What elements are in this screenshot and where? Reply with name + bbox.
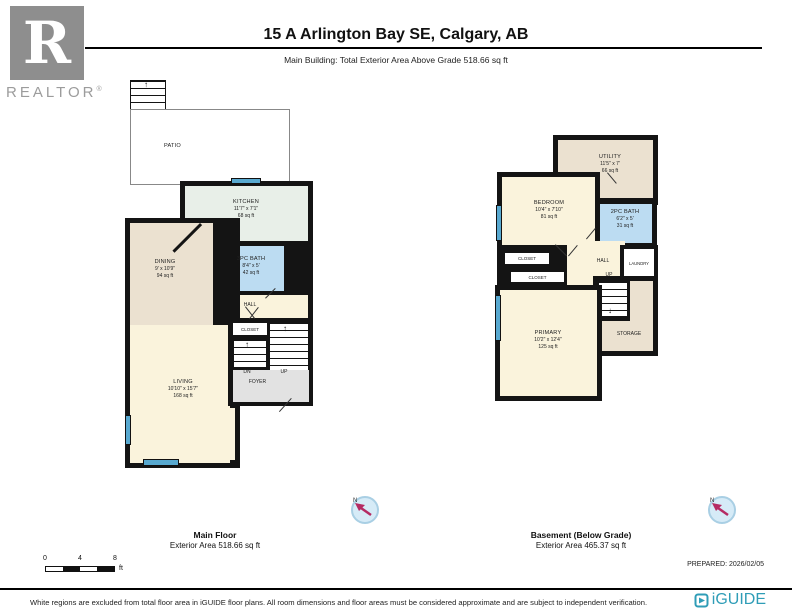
- room-living-extension: [225, 408, 235, 460]
- scale-segment: [80, 567, 97, 571]
- room-name: UTILITY: [570, 153, 650, 161]
- room-dims: 6'2" x 5': [585, 216, 665, 223]
- room-name: 2PC BATH: [585, 208, 665, 216]
- scale-bar: [45, 566, 115, 572]
- room-name: PRIMARY: [508, 329, 588, 337]
- up-label: UP: [274, 369, 294, 375]
- floor-name: Main Floor: [130, 530, 300, 541]
- room-name: LIVING: [153, 378, 213, 386]
- room-dims: 9' x 10'9": [135, 266, 195, 273]
- room-area: 31 sq ft: [585, 223, 665, 230]
- realtor-word: REALTOR: [6, 84, 96, 101]
- header-divider: [85, 47, 762, 49]
- room-area: 125 sq ft: [508, 344, 588, 351]
- room-name: 3PC BATH: [211, 255, 291, 263]
- floor-area: Exterior Area 465.37 sq ft: [495, 541, 667, 551]
- disclaimer-text: White regions are excluded from total fl…: [30, 598, 647, 607]
- room-laundry-label: LAUNDRY: [622, 261, 656, 266]
- floorplan-page: R REALTOR® 15 A Arlington Bay SE, Calgar…: [0, 0, 792, 612]
- living-window-bottom: [143, 459, 179, 466]
- floor-area: Exterior Area 518.66 sq ft: [130, 541, 300, 551]
- stairs-arrow-icon: ↑: [283, 325, 287, 333]
- room-dims: 10'4" x 7'10": [509, 207, 589, 214]
- iguide-logo-icon: [694, 593, 709, 608]
- room-primary-label: PRIMARY 10'2" x 12'4" 125 sq ft: [508, 329, 588, 352]
- room-dims: 10'2" x 12'4": [508, 337, 588, 344]
- room-dims: 11'7" x 7'1": [206, 206, 286, 213]
- stairs-down-flight: [233, 339, 267, 368]
- page-title: 15 A Arlington Bay SE, Calgary, AB: [0, 26, 792, 44]
- iguide-logo-text: iGUIDE: [712, 591, 766, 609]
- scale-segment: [63, 567, 80, 571]
- scale-segment: [46, 567, 63, 571]
- compass-north-label: N: [710, 498, 714, 504]
- compass-icon: N: [350, 495, 380, 525]
- basement-plan: CLOSET CLOSET HALL UP LAUNDRY ↓ STORAGE …: [495, 133, 667, 405]
- room-area: 68 sq ft: [206, 213, 286, 220]
- dn-label: DN: [237, 369, 257, 375]
- primary-window: [495, 295, 501, 341]
- compass-icon: N: [707, 495, 737, 525]
- room-storage-label: STORAGE: [605, 331, 653, 337]
- room-area: 42 sq ft: [211, 270, 291, 277]
- room-area: 94 sq ft: [135, 273, 195, 280]
- scale-tick-4: 4: [74, 555, 86, 562]
- room-hall-label: HALL: [230, 302, 270, 308]
- room-area: 168 sq ft: [153, 393, 213, 400]
- room-2pc-bath-label: 2PC BATH 6'2" x 5' 31 sq ft: [585, 208, 665, 231]
- compass-north-label: N: [353, 498, 357, 504]
- floor-name: Basement (Below Grade): [495, 530, 667, 541]
- iguide-logo: iGUIDE: [694, 591, 766, 609]
- prepared-date: PREPARED: 2026/02/05: [687, 561, 764, 568]
- room-dims: 10'10" x 15'7": [153, 386, 213, 393]
- room-dims: 11'5" x 7': [570, 161, 650, 168]
- living-window-left: [125, 415, 131, 445]
- kitchen-window: [231, 178, 261, 184]
- basement-caption: Basement (Below Grade) Exterior Area 465…: [495, 530, 667, 551]
- stairs-arrow-icon: ↑: [245, 341, 249, 349]
- page-subtitle: Main Building: Total Exterior Area Above…: [0, 55, 792, 65]
- room-kitchen-label: KITCHEN 11'7" x 7'1" 68 sq ft: [206, 198, 286, 221]
- main-floor-plan: ↑ DN PATIO CLOSET ↑ ↑ DN UP FOYER: [125, 78, 317, 470]
- room-name: DINING: [135, 258, 195, 266]
- stairs-up-arrow-icon: ↑: [144, 81, 148, 89]
- room-name: PATIO: [150, 142, 195, 150]
- room-living-label: LIVING 10'10" x 15'7" 168 sq ft: [153, 378, 213, 401]
- room-dims: 8'4" x 5': [211, 263, 291, 270]
- exterior-stairs: [130, 80, 166, 110]
- room-foyer-label: FOYER: [235, 379, 280, 385]
- room-hall-label: HALL: [583, 258, 623, 264]
- stairs-down-arrow-icon: ↓: [608, 307, 612, 315]
- room-closet-1: CLOSET: [503, 251, 551, 266]
- room-bedroom-label: BEDROOM 10'4" x 7'10" 81 sq ft: [509, 199, 589, 222]
- registered-mark: ®: [96, 86, 101, 93]
- room-3pc-bath-label: 3PC BATH 8'4" x 5' 42 sq ft: [211, 255, 291, 278]
- scale-tick-8: 8: [109, 555, 121, 562]
- room-area: 81 sq ft: [509, 214, 589, 221]
- room-utility-label: UTILITY 11'5" x 7' 66 sq ft: [570, 153, 650, 176]
- scale-segment: [97, 567, 114, 571]
- room-closet-2: CLOSET: [509, 270, 566, 284]
- scale-unit: ft: [119, 565, 123, 572]
- room-area: 66 sq ft: [570, 168, 650, 175]
- bedroom-window: [496, 205, 502, 241]
- realtor-logo-text: REALTOR®: [6, 84, 102, 101]
- room-name: KITCHEN: [206, 198, 286, 206]
- room-dining-label: DINING 9' x 10'9" 94 sq ft: [135, 258, 195, 281]
- scale-tick-0: 0: [39, 555, 51, 562]
- room-closet: CLOSET: [231, 321, 269, 337]
- basement-stairs: [598, 281, 628, 317]
- main-floor-caption: Main Floor Exterior Area 518.66 sq ft: [130, 530, 300, 551]
- room-name: BEDROOM: [509, 199, 589, 207]
- footer-divider: [0, 588, 792, 590]
- room-patio-label: PATIO: [150, 142, 195, 150]
